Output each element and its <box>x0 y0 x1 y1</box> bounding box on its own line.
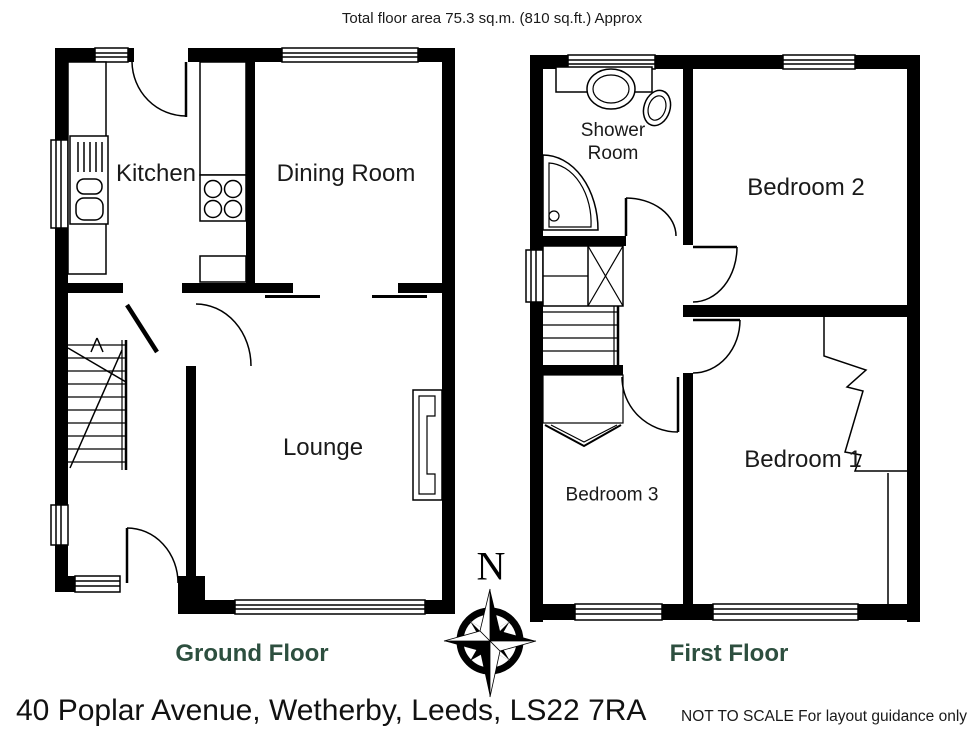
room-label-kitchen: Kitchen <box>116 160 196 188</box>
window-kitchen-top <box>95 48 128 62</box>
stairs-ground <box>68 338 126 470</box>
hob-icon <box>200 175 246 221</box>
window-bed2-top <box>783 55 855 69</box>
window-hall-bottom <box>75 576 120 592</box>
ground-floor-plan <box>55 48 455 614</box>
room-label-bedroom-1: Bedroom 1 <box>744 446 861 474</box>
door-bed1 <box>693 320 740 373</box>
door-shower <box>626 198 676 236</box>
window-hall-left <box>51 505 68 545</box>
landing-cupboard <box>543 246 623 306</box>
room-label-bedroom-2: Bedroom 2 <box>747 174 864 202</box>
fireplace <box>413 390 442 500</box>
floorplan-page: Total floor area 75.3 sq.m. (810 sq.ft.)… <box>0 0 980 739</box>
door-bed3 <box>622 377 678 432</box>
door-front <box>127 528 178 583</box>
property-address: 40 Poplar Avenue, Wetherby, Leeds, LS22 … <box>16 694 646 728</box>
door-dining-hall <box>127 305 157 352</box>
window-lounge-bottom <box>235 600 425 614</box>
kitchen-sink <box>70 136 108 224</box>
compass-icon <box>444 589 536 697</box>
stairs-first <box>543 306 623 446</box>
door-bed2 <box>693 247 737 302</box>
door-hall-lounge <box>196 304 251 366</box>
compass-north-label: N <box>477 543 506 590</box>
total-area-title: Total floor area 75.3 sq.m. (810 sq.ft.)… <box>342 10 642 27</box>
window-bed1-bottom <box>713 604 858 620</box>
floorplan-drawing <box>0 0 980 739</box>
window-dining-top <box>282 48 418 62</box>
basin <box>556 67 652 109</box>
room-label-lounge: Lounge <box>283 434 363 462</box>
window-bed3-bottom <box>575 604 662 620</box>
door-kitchen-back <box>132 62 186 117</box>
scale-disclaimer: NOT TO SCALE For layout guidance only <box>681 708 967 726</box>
ground-floor-label: Ground Floor <box>175 640 328 668</box>
window-kitchen-left <box>51 140 68 228</box>
room-label-shower-room: Shower Room <box>553 119 673 165</box>
shower-tray <box>543 155 598 230</box>
room-label-bedroom-3: Bedroom 3 <box>552 483 672 506</box>
window-landing-left <box>526 250 543 302</box>
first-floor-label: First Floor <box>670 640 789 668</box>
room-label-dining: Dining Room <box>277 160 416 188</box>
